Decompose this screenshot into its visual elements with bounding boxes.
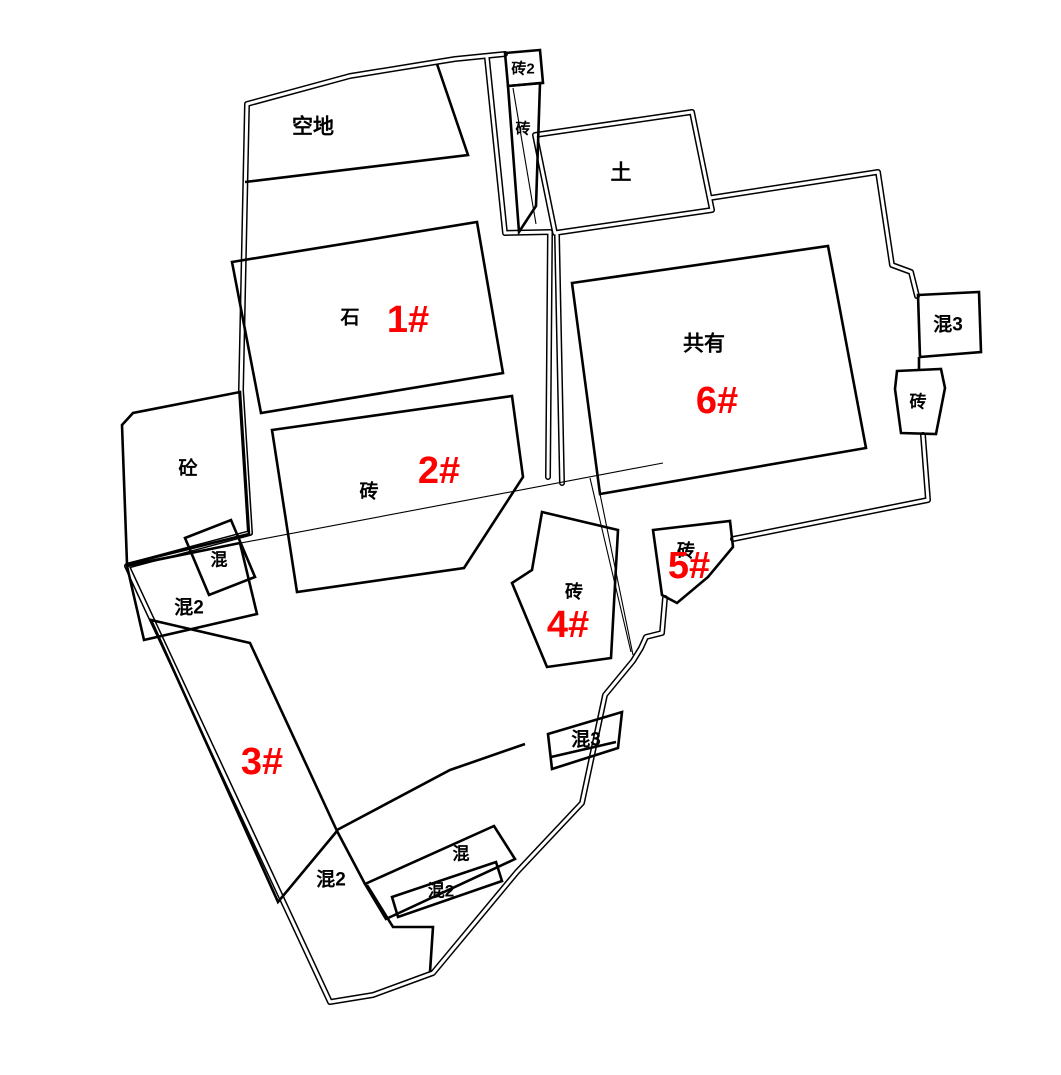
label-brick-strip: 砖 <box>515 120 530 138</box>
label-stone: 石 <box>339 308 359 329</box>
label-mixed2-cluster: 混2 <box>428 882 454 901</box>
label-brick2-top: 砖2 <box>511 60 534 78</box>
cadastral-map: 空地 砖2 砖 土 石 共有 砼 混 混2 砖 混3 砖 砖 砖 混3 混2 混… <box>0 0 1061 1075</box>
building-6-outline <box>572 246 866 494</box>
construction-lines <box>125 88 663 655</box>
label-brick-building4: 砖 <box>565 581 583 602</box>
boundary-southeast <box>733 435 928 539</box>
label-mixed3-bottom: 混3 <box>571 729 601 751</box>
survey-drawing-canvas: 空地 砖2 砖 土 石 共有 砼 混 混2 砖 混3 砖 砖 砖 混3 混2 混… <box>0 0 1061 1075</box>
wedge-line-east <box>600 494 633 655</box>
vacant-area-divider <box>245 64 468 182</box>
label-brick-building2: 砖 <box>359 480 378 503</box>
building-number-6: 6# <box>696 380 738 422</box>
building-number-4: 4# <box>547 604 589 646</box>
building-2-outline <box>272 396 523 592</box>
cluster-step-outline <box>367 885 433 972</box>
label-shared: 共有 <box>683 332 725 356</box>
area-labels: 空地 砖2 砖 土 石 共有 砼 混 混2 砖 混3 砖 砖 砖 混3 混2 混… <box>174 60 963 901</box>
long-cross-line <box>125 463 663 565</box>
boundary-southeast-gap <box>733 435 928 539</box>
building-1-outline <box>232 222 503 413</box>
building-number-labels: 1# 2# 3# 4# 5# 6# <box>241 299 738 783</box>
label-mixed-cluster: 混 <box>453 845 470 864</box>
bottom-internal-line <box>337 744 525 830</box>
label-concrete: 砼 <box>178 457 198 480</box>
label-mixed2-left: 混2 <box>174 597 204 619</box>
building-number-1: 1# <box>387 299 429 341</box>
label-vacant: 空地 <box>292 115 334 139</box>
label-brick-right: 砖 <box>910 392 927 412</box>
label-earth: 土 <box>611 162 632 185</box>
wedge-line-west <box>590 478 631 652</box>
brick-strip-outline <box>508 83 540 232</box>
building-number-5: 5# <box>668 545 710 587</box>
label-mixed3-right: 混3 <box>933 314 963 336</box>
label-mixed2-region: 混2 <box>316 869 346 891</box>
label-mixed-small: 混 <box>211 551 228 570</box>
building-number-2: 2# <box>418 450 460 492</box>
building-number-3: 3# <box>241 741 283 783</box>
